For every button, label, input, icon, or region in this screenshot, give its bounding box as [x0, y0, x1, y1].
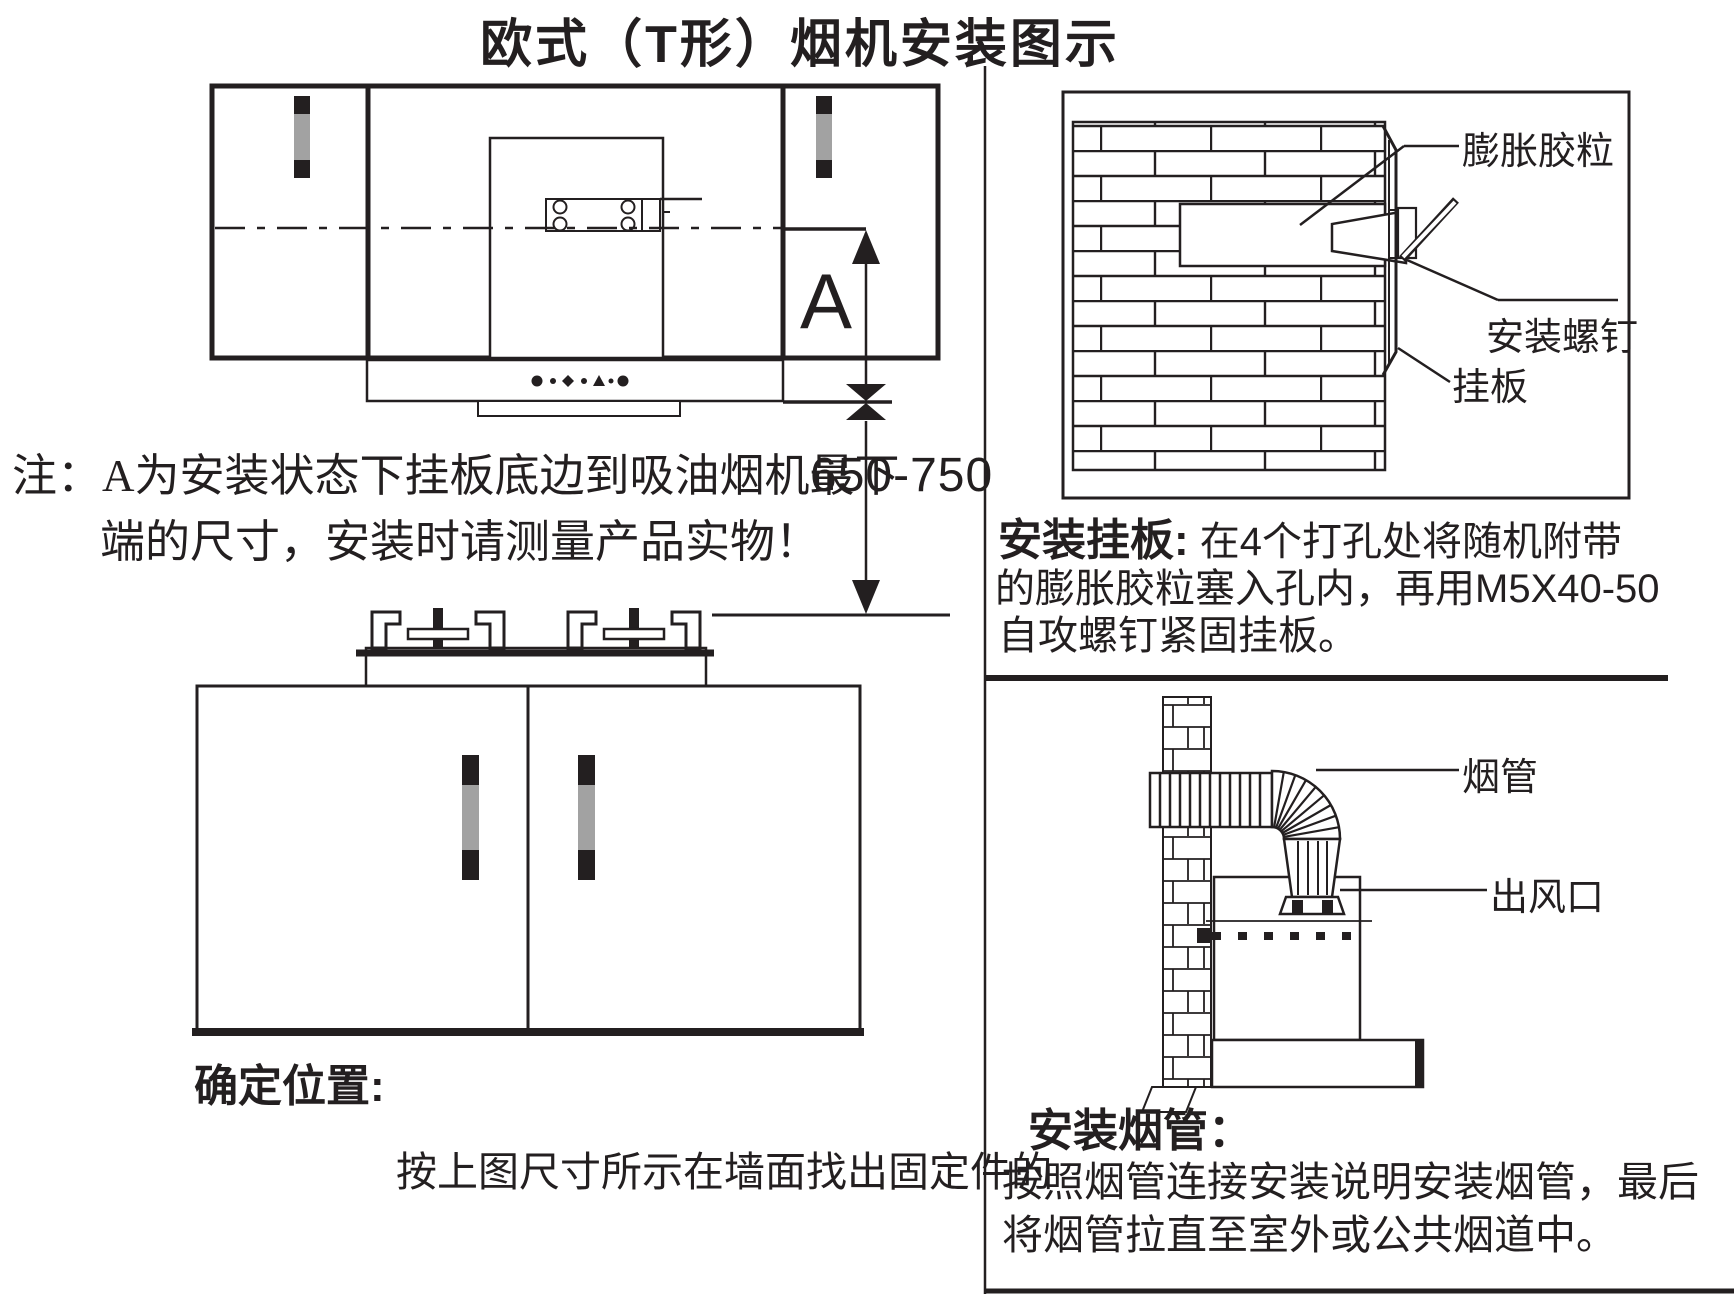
brick-wall [1073, 122, 1385, 470]
cabinet-handle-right-lower [578, 755, 595, 880]
lower-cabinet [192, 686, 864, 1032]
cabinet-handle-left-upper [294, 96, 310, 178]
position-heading: 确定位置: [194, 1050, 385, 1114]
label-air-outlet: 出风口 [1490, 866, 1604, 921]
cabinet-handle-left-lower [462, 755, 479, 880]
note-text: 注：A为安装状态下挂板底边到吸油烟机最下 端的尺寸，安装时请测量产品实物！ [12, 444, 900, 575]
duct-install-line-1: 按照烟管连接安装说明安装烟管，最后 [1002, 1148, 1699, 1208]
dimension-a-label: A [800, 256, 852, 347]
hood-canopy [1212, 1040, 1423, 1087]
dimension-range-label: 650-750 [810, 448, 993, 503]
cabinet-handle-right-upper [816, 96, 832, 178]
note-line-2: 端的尺寸，安装时请测量产品实物！ [100, 510, 900, 576]
position-line-1: 按上图尺寸所示在墙面找出固定件的 [396, 1148, 1052, 1196]
page-title: 欧式（T形）烟机安装图示 [60, 2, 1540, 77]
gas-stove [356, 608, 714, 686]
label-smoke-duct: 烟管 [1462, 746, 1538, 801]
note-line-1: 注：A为安装状态下挂板底边到吸油烟机最下 [12, 444, 900, 510]
chimney-column [1163, 697, 1211, 1087]
label-hanging-plate: 挂板 [1452, 356, 1528, 411]
hood-chimney [490, 138, 663, 358]
manual-page: 欧式（T形）烟机安装图示 注：A为安装状态下挂板底边到吸油烟机最下 端的尺寸，安… [0, 0, 1734, 1294]
label-mounting-screw: 安装螺钉 [1486, 306, 1638, 361]
label-expansion-anchor: 膨胀胶粒 [1462, 120, 1614, 175]
duct-install-line-2: 将烟管拉直至室外或公共烟道中。 [1002, 1201, 1617, 1261]
hood-body [367, 360, 783, 416]
position-paragraph: 按上图尺寸所示在墙面找出固定件的 安装位置，钻4个孔，孔深50mm， 孔径10m… [396, 1052, 1052, 1294]
mount-plate-paragraph-line-3: 自攻螺钉紧固挂板。 [998, 603, 1358, 661]
air-outlet-collar [1280, 897, 1344, 914]
